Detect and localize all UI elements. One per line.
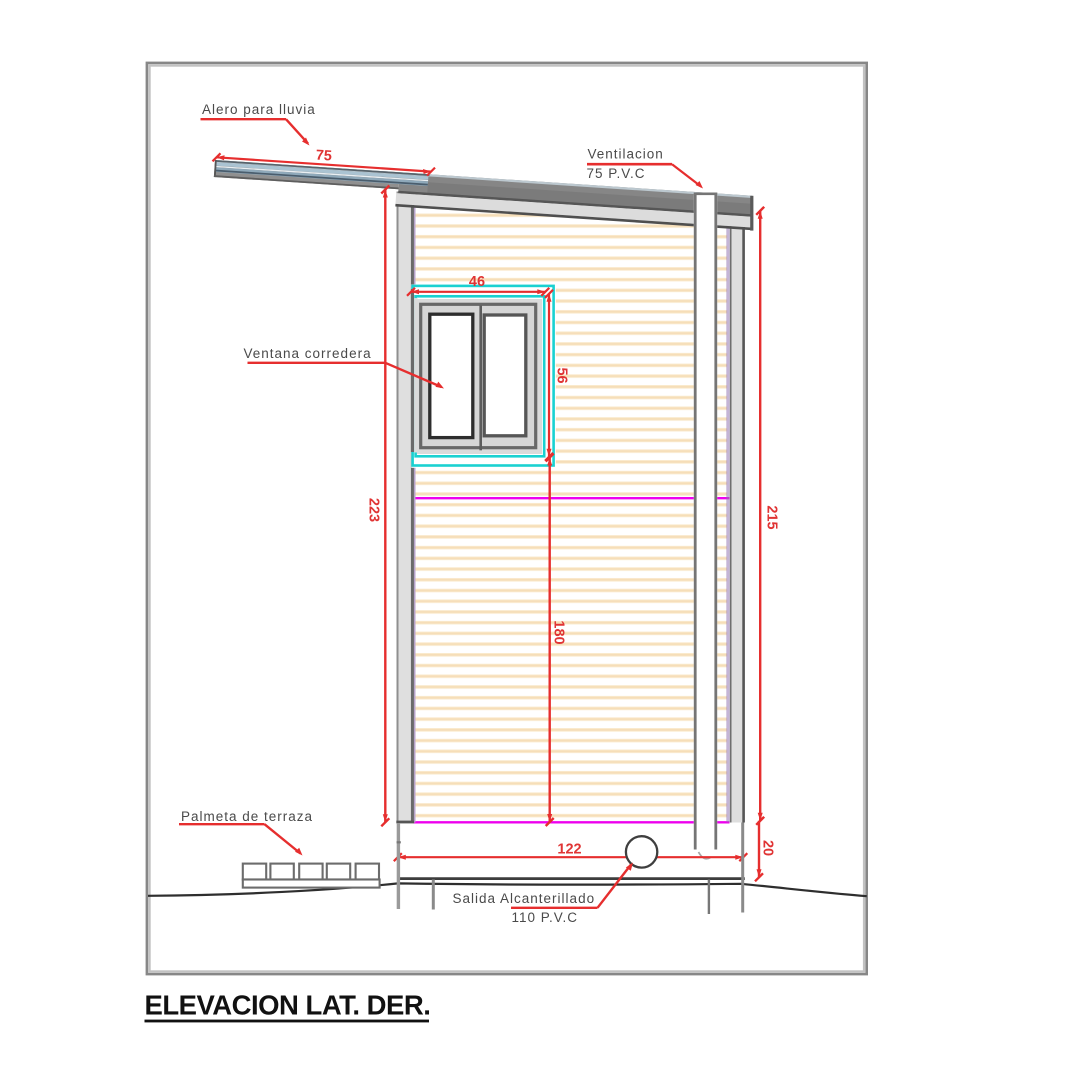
svg-text:20: 20 [760,840,776,856]
svg-text:56: 56 [554,367,570,383]
svg-text:ELEVACION LAT. DER.: ELEVACION LAT. DER. [145,990,431,1021]
svg-text:Salida Alcanterillado: Salida Alcanterillado [453,891,596,906]
svg-text:Ventilacion: Ventilacion [588,147,664,162]
svg-text:110 P.V.C: 110 P.V.C [512,910,579,925]
svg-text:223: 223 [366,498,382,522]
svg-text:Ventana corredera: Ventana corredera [244,346,372,361]
svg-text:122: 122 [557,842,581,858]
svg-text:46: 46 [469,274,485,290]
svg-text:215: 215 [764,505,780,529]
svg-text:Alero para lluvia: Alero para lluvia [202,102,316,117]
svg-text:180: 180 [551,620,567,644]
svg-text:75 P.V.C: 75 P.V.C [587,166,646,181]
svg-text:Palmeta de terraza: Palmeta de terraza [181,809,313,824]
svg-text:75: 75 [315,147,332,164]
